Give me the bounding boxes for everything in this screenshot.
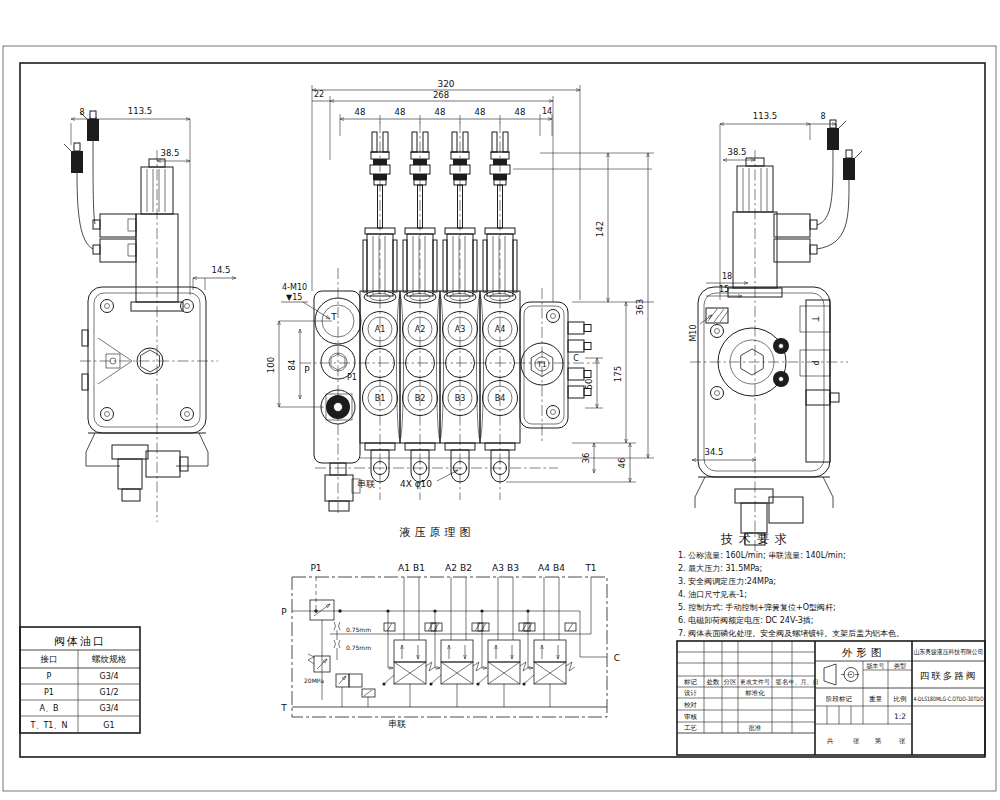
- port-label-B4: B4: [495, 394, 506, 403]
- dim-48-2: 48: [395, 107, 406, 117]
- tb-label-zone: 分区: [724, 678, 738, 686]
- dim-8: 8: [79, 108, 84, 117]
- dim-48-1: 48: [355, 107, 366, 117]
- port-label-P: P: [304, 365, 310, 375]
- tb-part-number: 4-DLS180MLG-C.OTDO-30TDO: [914, 695, 984, 702]
- front-view-right-dimensions: 142 175 363 50 36 46: [360, 153, 654, 482]
- port-table-title: 阀体油口: [54, 635, 106, 648]
- dim-8-r: 8: [820, 112, 825, 121]
- port-label-A2: A2: [415, 325, 426, 334]
- port-label-B1: B1: [375, 394, 386, 403]
- sch-port-P: P: [281, 607, 287, 617]
- port-table-cell: G1: [103, 721, 114, 730]
- tb-label-count: 处数: [707, 678, 721, 686]
- sch-port-T1: T1: [584, 563, 596, 573]
- inlet-section: [314, 291, 361, 511]
- dim-50: 50: [584, 379, 594, 390]
- engineering-drawing-sheet: 8 113.5 38.5 14.5: [0, 0, 1000, 800]
- tech-line-7: 7. 阀体表面磷化处理。安全阀及螺堵镀锌。支架后盖为铝本色。: [678, 629, 904, 638]
- port-label-B3: B3: [455, 394, 466, 403]
- front-view-top-dimensions: 320 268 22 48 48 48 48 48 14: [312, 79, 580, 302]
- tb-label-approve: 批准: [749, 724, 763, 732]
- port-table-cell: A、B: [40, 704, 59, 713]
- tech-line-1: 1. 公称流量: 160L/min; 串联流量: 140L/min;: [678, 551, 846, 560]
- port-label-A4: A4: [495, 325, 506, 334]
- dim-84: 84: [287, 360, 297, 371]
- tb-drawing-type: 外形图: [842, 646, 886, 658]
- tb-label-stage-mark: 阶段标记: [826, 695, 853, 703]
- port-label-A3: A3: [455, 325, 466, 334]
- sch-port-B2: B2: [460, 563, 472, 573]
- dim-14-5: 14.5: [212, 265, 231, 275]
- tb-label-total: 共: [827, 737, 834, 745]
- sch-port-B1: B1: [413, 563, 425, 573]
- sch-port-T: T: [280, 703, 287, 713]
- port-table-cell: T、T1、N: [30, 721, 68, 730]
- tb-label-standardize: 标准化: [744, 689, 765, 697]
- dim-14: 14: [542, 107, 552, 116]
- port-label-T: T: [330, 312, 337, 322]
- cable-connector-icon: [827, 120, 862, 180]
- tb-label-type: 类型: [894, 662, 906, 670]
- title-block: 标记 处数 分区 更改文件号 签名 年、月、日 设计 标准化 校对 审核 工艺 …: [677, 641, 985, 755]
- tech-line-5: 5. 控制方式: 手动控制+弹簧复位+O型阀杆;: [678, 603, 836, 612]
- front-view: T P P1 A1 A2 A3 A4 B1 B2 B3 B4 T1 C 4-M1…: [266, 79, 654, 515]
- dim-46: 46: [617, 458, 627, 469]
- tech-line-3: 3. 安全阀调定压力:24MPa;: [678, 577, 776, 586]
- tech-title: 技术要求: [720, 532, 793, 546]
- orifice-note-1: 0.75mm: [346, 626, 371, 633]
- dim-320: 320: [437, 79, 454, 89]
- left-side-view: 8 113.5 38.5 14.5: [64, 106, 236, 522]
- port-table-cell: P1: [44, 688, 54, 697]
- dim-48-3: 48: [435, 107, 446, 117]
- drawing-canvas: 8 113.5 38.5 14.5: [0, 0, 1000, 800]
- sch-port-A3: A3: [492, 563, 504, 573]
- sch-port-B4: B4: [553, 563, 565, 573]
- holes-note: 4X φ10: [400, 479, 432, 489]
- port-label-A1: A1: [375, 325, 386, 334]
- sch-port-A1: A1: [398, 563, 410, 573]
- tb-company: 山东奥骏液压科技有限公司: [914, 648, 984, 656]
- relief-pressure-note: 20MPa: [304, 677, 324, 684]
- tb-label-weight: 重量: [869, 695, 883, 703]
- dim-38-5-r: 38.5: [728, 147, 747, 157]
- tb-label-design: 设计: [684, 689, 698, 697]
- port-table-cell: G1/2: [99, 688, 118, 697]
- tb-label-audit: 审核: [684, 713, 698, 721]
- port-table-header-thread: 螺纹规格: [92, 654, 127, 664]
- tb-label-sign: 签名: [776, 678, 789, 686]
- sch-series-label: 串联: [388, 719, 406, 729]
- dim-175: 175: [613, 366, 623, 382]
- port-label-P-side: P: [810, 361, 819, 366]
- first-angle-projection-icon: [824, 664, 861, 685]
- tech-line-2: 2. 最大压力: 31.5MPa;: [678, 564, 762, 573]
- port-label-P1: P1: [347, 373, 357, 382]
- front-view-left-dimensions: 100 84: [266, 321, 332, 407]
- tb-label-page-no: 第: [875, 737, 882, 745]
- technical-requirements: 技术要求 1. 公称流量: 160L/min; 串联流量: 140L/min; …: [678, 532, 904, 638]
- hydraulic-schematic: 液压原理图 P1 A1 B1 A2 B2 A3 B3 A4 B4 T1 P T …: [280, 526, 620, 729]
- port-label-B2: B2: [415, 394, 426, 403]
- control-handles: [363, 132, 517, 303]
- dim-34-5: 34.5: [705, 447, 724, 457]
- orifice-note-2: 0.75mm: [346, 644, 371, 651]
- tech-line-4: 4. 油口尺寸见表-1;: [678, 590, 747, 599]
- tb-label-scale: 比例: [894, 695, 907, 703]
- port-label-C: C: [573, 354, 579, 363]
- depth-note: ▼15: [286, 293, 302, 302]
- right-side-view: T P 113.5 8 38.5 18 15 M10 34.5: [689, 111, 862, 552]
- tb-label-date: 年、月、日: [789, 678, 819, 686]
- port-table: 阀体油口 接口 螺纹规格 P G3/4 P1 G1/2 A、B G3/4 T、T…: [20, 627, 140, 733]
- outlet-section: [520, 302, 591, 428]
- dim-363: 363: [635, 299, 645, 315]
- tb-label-sheets2: 张: [899, 737, 906, 745]
- tb-label-version: 版本号: [867, 662, 885, 669]
- dim-113-5-r: 113.5: [753, 111, 777, 121]
- tb-scale-value: 1:2: [894, 712, 906, 721]
- cable-connector-icon: [64, 111, 99, 173]
- thread-note: 4-M10: [282, 283, 307, 292]
- port-table-cell: G3/4: [99, 672, 118, 681]
- schematic-title: 液压原理图: [400, 526, 475, 539]
- dim-22: 22: [314, 90, 324, 99]
- sch-port-C: C: [614, 653, 620, 663]
- dim-48-5: 48: [515, 107, 526, 117]
- tb-label-process: 工艺: [684, 724, 698, 732]
- dim-38-5: 38.5: [161, 148, 180, 158]
- sch-port-B3: B3: [507, 563, 519, 573]
- tb-label-sheets: 张: [853, 737, 860, 745]
- port-label-T-side: T: [810, 316, 819, 322]
- tb-product: 四联多路阀: [920, 670, 978, 681]
- right-view-dimensions: 113.5 8 38.5 18 15 M10 34.5: [689, 111, 836, 460]
- port-table-cell: G3/4: [99, 704, 118, 713]
- dim-18: 18: [722, 272, 732, 281]
- dim-36: 36: [581, 453, 591, 464]
- dim-268: 268: [433, 90, 449, 100]
- sch-port-P1: P1: [310, 563, 321, 573]
- tb-label-mark: 标记: [683, 678, 698, 686]
- port-label-T1: T1: [536, 360, 547, 369]
- dim-15: 15: [719, 285, 729, 294]
- tb-label-file-no: 更改文件号: [740, 678, 770, 685]
- tb-label-check: 校对: [683, 701, 698, 709]
- inlet-control-cluster: 0.75mm 0.75mm 20MPa: [304, 600, 375, 707]
- dim-113-5: 113.5: [128, 106, 152, 116]
- series-label: 串联: [357, 479, 375, 489]
- note-m10: M10: [689, 324, 698, 341]
- tech-line-6: 6. 电磁卸荷阀额定电压: DC 24V-3插;: [678, 616, 814, 625]
- sch-port-A4: A4: [538, 563, 550, 573]
- mounting-feet: [365, 443, 515, 482]
- port-table-cell: P: [47, 672, 52, 681]
- sch-port-A2: A2: [445, 563, 457, 573]
- spool-sections: [382, 577, 576, 707]
- dim-48-4: 48: [475, 107, 486, 117]
- dim-100: 100: [266, 357, 276, 373]
- work-sections: [360, 291, 520, 443]
- dim-142: 142: [595, 221, 605, 237]
- port-table-header-port: 接口: [40, 654, 58, 664]
